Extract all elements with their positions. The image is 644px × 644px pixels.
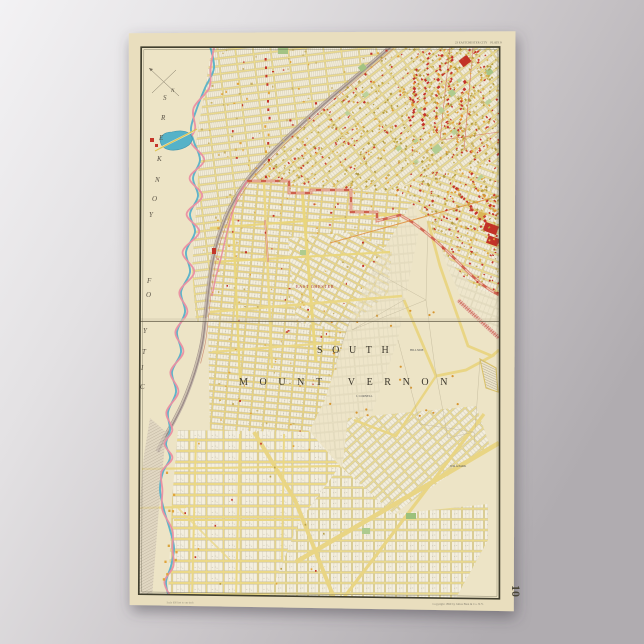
svg-text:HILLSIDE: HILLSIDE — [410, 348, 424, 352]
svg-text:J. CORNELL: J. CORNELL — [356, 394, 373, 398]
svg-text:R: R — [160, 114, 166, 122]
svg-text:O: O — [152, 195, 157, 203]
svg-text:N: N — [170, 89, 175, 94]
svg-text:MOUNT VERNON: MOUNT VERNON — [239, 377, 459, 388]
svg-text:23 EASTCHESTER CITY PLATE 9: 23 EASTCHESTER CITY PLATE 9 — [455, 41, 502, 45]
svg-text:EAST CHESTER: EAST CHESTER — [296, 284, 334, 289]
svg-text:O: O — [146, 291, 151, 299]
svg-text:Scale 600 feet to one inch: Scale 600 feet to one inch — [167, 602, 195, 605]
svg-text:Copyright 1899 by Julius Bien: Copyright 1899 by Julius Bien & Co. N.Y. — [432, 602, 484, 606]
svg-text:SOUTH: SOUTH — [317, 345, 398, 356]
svg-text:S: S — [163, 94, 167, 102]
svg-text:10: 10 — [509, 585, 523, 597]
svg-text:Wm A PARK: Wm A PARK — [450, 464, 467, 468]
svg-text:E: E — [158, 134, 164, 142]
svg-text:K: K — [156, 155, 162, 163]
svg-text:F: F — [146, 277, 152, 285]
svg-text:N: N — [154, 176, 160, 184]
